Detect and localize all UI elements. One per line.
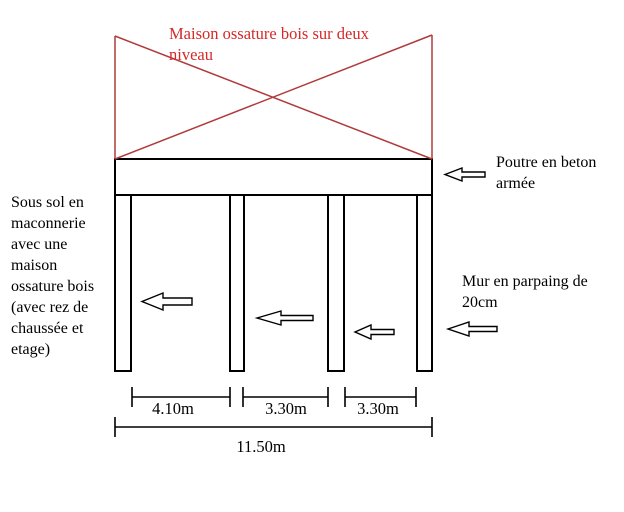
dim-label-total: 11.50m xyxy=(236,437,285,457)
dim-label-bay3: 3.30m xyxy=(357,399,399,419)
basement-note-label: Sous sol en maconnerie avec une maison o… xyxy=(11,192,94,360)
title-label: Maison ossature bois sur deux niveau xyxy=(169,23,369,65)
bay3-left-arrow-icon xyxy=(355,325,394,339)
bay2-left-arrow-icon xyxy=(257,311,313,325)
beam-left-arrow-icon xyxy=(445,168,485,181)
diagram-canvas: Maison ossature bois sur deux niveau Sou… xyxy=(0,0,624,512)
dimension-line-total xyxy=(115,417,432,437)
dim-label-bay1: 4.10m xyxy=(152,399,194,419)
beam-note-label: Poutre en beton armée xyxy=(496,152,596,194)
wall-note-label: Mur en parpaing de 20cm xyxy=(462,271,588,313)
dim-label-bay2: 3.30m xyxy=(265,399,307,419)
wall-left-arrow-icon xyxy=(448,322,497,336)
bay1-left-arrow-icon xyxy=(142,293,192,310)
